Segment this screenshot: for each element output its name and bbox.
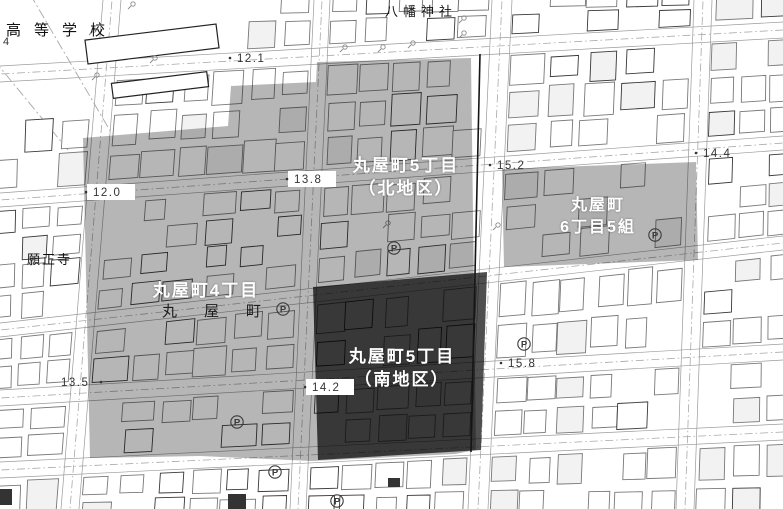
building-footprint — [442, 458, 467, 485]
building-footprint — [625, 318, 646, 349]
building-footprint — [330, 20, 357, 43]
building-footprint — [739, 211, 764, 237]
utility-pole-icon — [493, 223, 500, 230]
building-footprint — [709, 157, 733, 184]
svg-text:P: P — [391, 243, 398, 254]
building-footprint — [189, 498, 218, 509]
building-footprint — [83, 476, 109, 495]
building-footprint — [626, 48, 655, 74]
basemap-drawing: 12.112.013.815.214.413.514.215.8PPPPPPP — [0, 0, 783, 509]
building-footprint — [494, 410, 522, 436]
building-footprint — [557, 454, 582, 485]
building-footprint — [25, 119, 54, 153]
utility-pole-icon — [340, 45, 347, 52]
building-footprint — [732, 488, 760, 509]
building-footprint — [662, 0, 690, 6]
building-footprint — [627, 267, 652, 306]
building-footprint — [761, 0, 783, 17]
building-footprint — [18, 362, 41, 385]
dark-building — [0, 489, 12, 505]
building-footprint — [519, 490, 544, 509]
building-footprint — [709, 111, 735, 137]
building-footprint — [704, 290, 732, 315]
building-footprint — [26, 479, 59, 509]
building-footprint — [740, 110, 765, 133]
street-name-label: 丸屋町 — [162, 300, 288, 321]
block-number-label: 4 — [3, 36, 9, 48]
building-footprint — [590, 51, 617, 81]
district-label-maruyacho-4: 丸屋町4丁目 — [153, 279, 259, 302]
building-footprint — [588, 491, 610, 509]
building-footprint — [0, 437, 22, 458]
building-footprint — [767, 444, 783, 477]
school-label: 高等学校 — [6, 19, 118, 40]
building-footprint — [696, 488, 726, 509]
district-label-line: 丸屋町5丁目 — [349, 345, 455, 368]
building-footprint — [560, 278, 585, 312]
building-footprint — [768, 209, 783, 236]
building-footprint — [490, 490, 518, 509]
svg-text:P: P — [272, 467, 279, 478]
building-footprint — [662, 79, 688, 110]
building-footprint — [769, 182, 783, 207]
spot-elevation: 14.4 — [695, 148, 732, 160]
shrine-label: 八幡神社 — [385, 1, 457, 20]
building-footprint — [82, 502, 112, 509]
building-footprint — [58, 152, 88, 187]
spot-elevation: 12.0 — [85, 184, 135, 200]
building-footprint — [735, 258, 760, 281]
building-footprint — [159, 472, 184, 493]
building-footprint — [590, 374, 612, 398]
svg-text:14.4: 14.4 — [703, 148, 731, 160]
building-footprint — [512, 14, 539, 34]
building-footprint — [703, 321, 731, 348]
building-footprint — [771, 107, 783, 133]
building-footprint — [767, 395, 783, 421]
building-footprint — [771, 253, 783, 280]
building-footprint — [376, 497, 397, 509]
temple-label: 願正寺 — [27, 249, 72, 268]
building-footprint — [716, 0, 754, 20]
building-footprint — [0, 210, 16, 234]
district-label-maruyacho-5-kita: 丸屋町5丁目 （北地区） — [353, 154, 459, 200]
city-map-canvas: 12.112.013.815.214.413.514.215.8PPPPPPP … — [0, 0, 783, 509]
dark-building — [388, 478, 400, 487]
building-footprint — [556, 406, 584, 433]
dark-building — [228, 494, 246, 509]
svg-text:13.5: 13.5 — [61, 377, 89, 389]
spot-elevation: 15.8 — [500, 358, 537, 370]
building-footprint — [120, 475, 144, 493]
building-footprint — [57, 206, 82, 226]
svg-text:P: P — [234, 417, 241, 428]
building-footprint — [491, 456, 516, 481]
district-label-line: 6丁目5組 — [560, 217, 636, 239]
building-footprint — [550, 120, 572, 147]
building-footprint — [654, 368, 679, 395]
building-footprint — [510, 54, 545, 86]
building-footprint — [556, 377, 583, 398]
building-footprint — [0, 366, 12, 389]
building-footprint — [584, 82, 615, 116]
building-footprint — [592, 406, 618, 428]
building-footprint — [770, 74, 783, 102]
building-footprint — [532, 323, 557, 352]
building-footprint — [708, 214, 736, 241]
building-footprint — [647, 447, 677, 478]
building-footprint — [434, 492, 464, 509]
building-footprint — [740, 185, 766, 207]
district-label-line: 丸屋町 — [560, 195, 636, 217]
building-footprint — [557, 320, 587, 354]
building-footprint — [656, 114, 684, 144]
building-footprint — [21, 335, 44, 359]
building-footprint — [548, 84, 574, 117]
building-footprint — [651, 491, 675, 509]
building-footprint — [711, 43, 737, 71]
building-footprint — [0, 338, 12, 360]
spot-elevation: 13.8 — [286, 171, 336, 187]
building-footprint — [406, 495, 430, 509]
building-footprint — [623, 453, 646, 480]
building-footprint — [587, 10, 618, 31]
building-footprint — [0, 264, 15, 289]
building-footprint — [333, 0, 358, 12]
svg-text:P: P — [334, 496, 341, 507]
building-footprint — [285, 21, 311, 46]
building-footprint — [497, 377, 527, 403]
building-footprint — [741, 75, 766, 102]
building-footprint — [657, 268, 683, 302]
building-footprint — [550, 55, 578, 76]
building-footprint — [711, 77, 734, 103]
building-footprint — [621, 81, 656, 109]
building-footprint — [734, 445, 760, 476]
building-footprint — [507, 123, 536, 151]
svg-text:14.2: 14.2 — [312, 382, 340, 394]
building-footprint — [659, 10, 691, 28]
building-footprint — [733, 397, 760, 422]
building-footprint — [31, 406, 66, 428]
spot-elevation: 14.2 — [304, 379, 354, 395]
building-footprint — [509, 91, 539, 118]
building-footprint — [22, 291, 44, 318]
building-footprint — [590, 315, 618, 347]
building-footprint — [614, 492, 643, 509]
district-label-maruyacho-6-5: 丸屋町 6丁目5組 — [560, 195, 636, 239]
building-footprint — [529, 458, 550, 484]
building-footprint — [458, 0, 489, 11]
building-footprint — [342, 464, 373, 489]
building-footprint — [768, 315, 783, 340]
building-footprint — [49, 333, 72, 357]
building-footprint — [281, 0, 310, 13]
building-footprint — [499, 281, 526, 317]
building-footprint — [365, 18, 387, 42]
building-footprint — [0, 409, 24, 429]
svg-text:15.2: 15.2 — [497, 160, 525, 172]
building-footprint — [22, 207, 50, 229]
building-footprint — [599, 274, 625, 307]
district-label-line: （北地区） — [353, 177, 459, 200]
utility-pole-icon — [378, 45, 385, 52]
district-label-line: （南地区） — [349, 368, 455, 391]
building-footprint — [154, 497, 185, 509]
building-footprint — [248, 21, 276, 49]
building-footprint — [532, 280, 560, 316]
building-footprint — [579, 119, 608, 146]
building-footprint — [550, 0, 586, 7]
building-footprint — [586, 0, 617, 7]
building-footprint — [527, 376, 556, 400]
building-footprint — [617, 402, 648, 430]
utility-pole-icon — [408, 41, 415, 48]
district-label-maruyacho-5-minami: 丸屋町5丁目 （南地区） — [349, 345, 455, 391]
svg-text:12.0: 12.0 — [93, 187, 121, 199]
svg-text:15.8: 15.8 — [508, 358, 536, 370]
building-footprint — [769, 153, 783, 176]
building-footprint — [427, 18, 456, 41]
building-footprint — [406, 460, 431, 488]
building-footprint — [262, 496, 287, 509]
svg-text:13.8: 13.8 — [294, 174, 322, 186]
building-footprint — [0, 159, 17, 189]
building-footprint — [731, 363, 762, 388]
utility-pole-icon — [128, 2, 135, 9]
building-footprint — [768, 39, 783, 66]
svg-text:P: P — [652, 230, 659, 241]
building-footprint — [227, 469, 249, 490]
building-footprint — [733, 317, 761, 344]
building-footprint — [524, 410, 547, 433]
district-label-line: 丸屋町4丁目 — [153, 279, 259, 302]
svg-text:P: P — [521, 339, 528, 350]
building-footprint — [0, 295, 11, 318]
svg-text:12.1: 12.1 — [237, 53, 265, 65]
spot-elevation: 12.1 — [229, 53, 266, 65]
building-footprint — [28, 433, 64, 455]
building-footprint — [699, 448, 725, 481]
district-label-line: 丸屋町5丁目 — [353, 154, 459, 177]
utility-pole-icon — [92, 73, 99, 80]
building-footprint — [627, 0, 659, 7]
building-footprint — [310, 467, 339, 489]
building-footprint — [192, 469, 221, 494]
